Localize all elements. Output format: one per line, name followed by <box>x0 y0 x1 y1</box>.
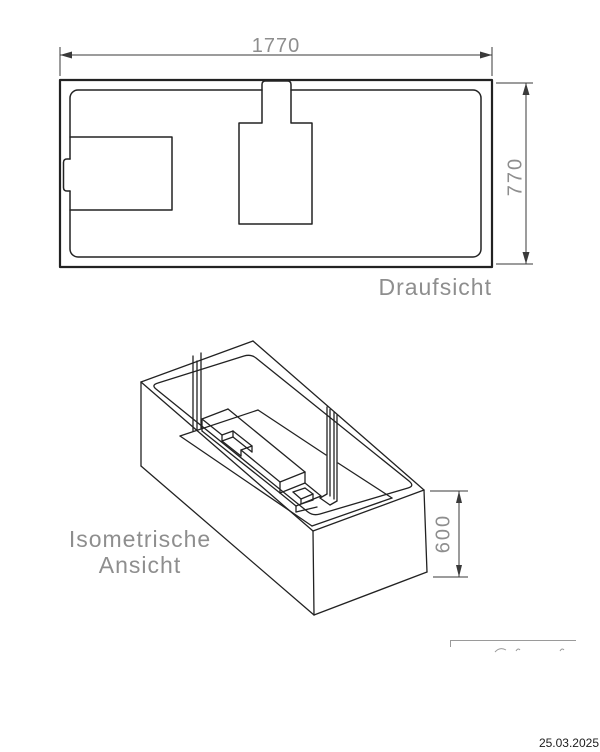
arrowhead <box>480 52 492 59</box>
date-stamp: 25.03.2025 <box>539 736 599 750</box>
arrowhead <box>523 83 530 95</box>
top-view-left-recess <box>70 137 172 210</box>
iso-view-label: Isometrische Ansicht <box>38 526 242 578</box>
arrowhead <box>456 565 462 577</box>
top-view-outer-rect <box>60 80 492 267</box>
top-view-left-edge-bump <box>64 159 71 191</box>
cropped-title-block-fragment <box>450 641 576 653</box>
dim-label-600: 600 <box>433 502 456 566</box>
top-view-drain-recess <box>239 81 312 224</box>
top-view-cavity-rim-right <box>70 90 481 257</box>
arrowhead <box>523 252 530 264</box>
iso-support-bench <box>202 409 321 512</box>
arrowhead <box>60 52 72 59</box>
iso-view-label-line2: Ansicht <box>38 552 242 578</box>
dim-label-770: 770 <box>505 146 528 208</box>
drawing-sheet: 1770 770 Draufsicht Isometrische Ansicht… <box>0 0 600 752</box>
top-view-cavity-rim-left <box>70 90 262 159</box>
top-view-drawing <box>60 80 492 267</box>
top-view-label: Draufsicht <box>292 274 492 301</box>
drawing-linework <box>0 0 600 752</box>
arrowhead <box>456 491 462 503</box>
iso-right-partition <box>320 407 337 505</box>
iso-view-label-line1: Isometrische <box>38 526 242 552</box>
dim-label-1770: 1770 <box>245 35 307 58</box>
